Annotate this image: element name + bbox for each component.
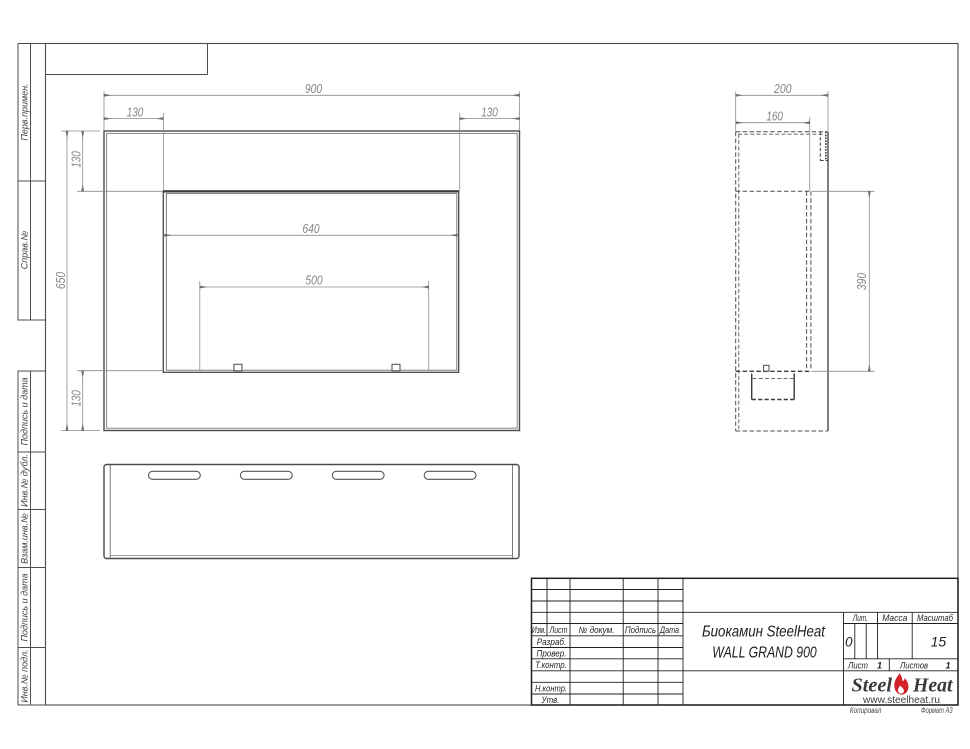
svg-text:160: 160 [766, 108, 783, 123]
svg-text:WALL GRAND 900: WALL GRAND 900 [712, 645, 817, 662]
svg-text:Разраб.: Разраб. [537, 637, 567, 647]
svg-text:Справ.№: Справ.№ [20, 231, 30, 270]
svg-text:390: 390 [854, 272, 869, 290]
svg-text:Формат А3: Формат А3 [921, 705, 953, 715]
svg-text:650: 650 [53, 271, 68, 289]
svg-text:130: 130 [127, 104, 144, 119]
svg-text:Масса: Масса [882, 613, 907, 623]
svg-text:Лит.: Лит. [852, 613, 868, 623]
svg-text:Копировал: Копировал [850, 705, 882, 715]
svg-text:Изм.: Изм. [532, 625, 546, 635]
svg-text:Подпись и дата: Подпись и дата [20, 377, 30, 445]
svg-text:0: 0 [845, 635, 853, 650]
svg-text:500: 500 [305, 273, 323, 288]
svg-text:Масштаб: Масштаб [917, 613, 954, 623]
svg-text:Т.контр.: Т.контр. [535, 660, 567, 670]
svg-text:130: 130 [68, 151, 83, 168]
svg-text:Подпись и дата: Подпись и дата [20, 573, 30, 641]
svg-text:Н.контр.: Н.контр. [535, 683, 567, 693]
svg-text:1: 1 [945, 661, 950, 671]
svg-text:Подпись: Подпись [625, 625, 656, 635]
svg-text:Инв.№ подл.: Инв.№ подл. [20, 649, 30, 702]
svg-text:Инв.№ дубл.: Инв.№ дубл. [20, 454, 30, 507]
svg-text:130: 130 [481, 104, 498, 119]
svg-text:Утв.: Утв. [541, 695, 560, 705]
svg-text:Листов: Листов [899, 661, 928, 671]
svg-text:15: 15 [931, 633, 947, 649]
svg-text:Лист: Лист [549, 625, 568, 635]
svg-text:200: 200 [773, 81, 792, 96]
svg-text:Взам.инв.№: Взам.инв.№ [20, 513, 30, 564]
svg-text:Дата: Дата [659, 625, 679, 635]
svg-text:130: 130 [68, 390, 83, 407]
svg-text:№ докум.: № докум. [579, 625, 615, 635]
svg-text:Перв.примен.: Перв.примен. [20, 83, 30, 140]
svg-text:640: 640 [302, 221, 320, 236]
svg-text:1: 1 [877, 661, 882, 671]
svg-text:900: 900 [305, 81, 323, 96]
svg-text:Провер.: Провер. [537, 648, 567, 658]
svg-text:Биокамин SteelHeat: Биокамин SteelHeat [702, 624, 825, 641]
svg-text:Лист: Лист [847, 661, 868, 671]
